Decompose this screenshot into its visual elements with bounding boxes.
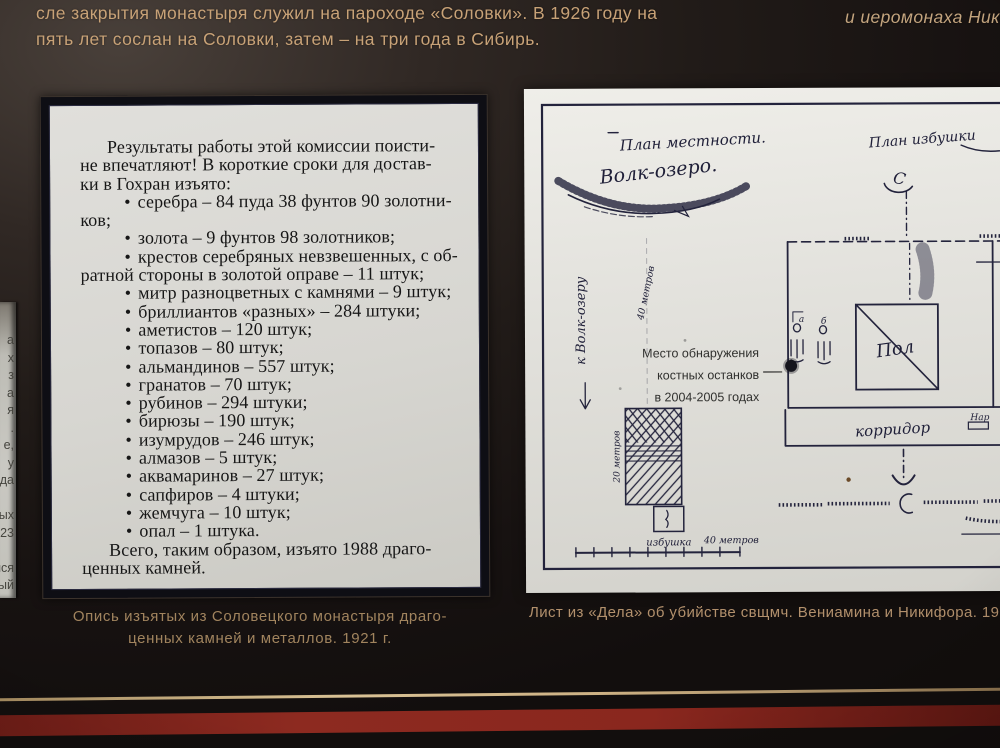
bullet-icon: • (125, 356, 132, 376)
text-fragment: 023 (0, 525, 14, 543)
bullet-icon: • (126, 484, 133, 504)
text-fragment: ых (0, 507, 14, 525)
document-line: •серебра – 84 пуда 38 фунтов 90 золотни- (80, 191, 464, 211)
skeleton-sketch-b: б (818, 316, 830, 364)
document-line: •аквамаринов – 27 штук; (82, 465, 466, 485)
document-line: •рубинов – 294 штуки; (81, 392, 465, 412)
text-fragment: да (0, 472, 14, 490)
header-line-2: пять лет сослан на Соловки, затем – на т… (36, 29, 540, 50)
remains-spot (785, 360, 797, 372)
nar-label: Нар (968, 413, 989, 429)
document-line: •аметистов – 120 штук; (81, 319, 465, 339)
document-line: •алмазов – 5 штук; (82, 447, 466, 467)
bullet-icon: • (125, 429, 132, 449)
text-fragment: а (7, 332, 14, 350)
inventory-panel: •Результаты работы этой комиссии поисти-… (40, 94, 491, 599)
svg-text:костных останков: костных останков (657, 368, 759, 382)
bullet-icon: • (125, 375, 132, 395)
direction-note: к Волк-озеру (574, 276, 589, 365)
bottom-note-squiggle (779, 493, 1000, 534)
paper-speck (846, 477, 850, 481)
site-plan-drawing: План местности. Волк-озеро. План избушки… (524, 87, 1000, 593)
bullet-icon: • (126, 448, 133, 468)
document-line: •жемчуга – 10 штук; (82, 502, 466, 522)
document-line: •изумрудов – 246 штук; (81, 429, 465, 449)
paper-speck (619, 387, 622, 390)
svg-text:в 2004-2005 годах: в 2004-2005 годах (654, 390, 760, 404)
document-line: •топазов – 80 штук; (81, 337, 465, 357)
bullet-icon: • (125, 393, 132, 413)
text-fragment: . (11, 420, 14, 438)
text-fragment: з (8, 367, 14, 385)
bullet-icon: • (125, 411, 132, 431)
hatched-area (625, 408, 681, 504)
bullet-icon: • (126, 466, 133, 486)
direction-arrow (580, 383, 590, 409)
shoreline-hatching (558, 180, 746, 217)
north-mark: С (884, 168, 912, 193)
bullet-icon: • (125, 301, 132, 321)
plan-title: План местности. (618, 128, 766, 154)
document-line: •ков; (80, 209, 464, 229)
exhibit-photo: сле закрытия монастыря служил на пароход… (0, 0, 1000, 748)
bullet-icon: • (126, 521, 133, 541)
bullet-icon: • (124, 192, 131, 212)
svg-text:С: С (891, 168, 907, 189)
remains-annotation: Место обнаружения костных останков в 200… (642, 346, 782, 405)
corridor-label: корридор (855, 418, 931, 440)
svg-text:а: а (799, 315, 804, 325)
header-line-1: сле закрытия монастыря служил на пароход… (36, 3, 657, 24)
hut-plan-title: План избушки (867, 128, 976, 152)
header-right-fragment: и иеромонаха Никифо (845, 7, 1000, 28)
document-line: •ценных камней. (82, 557, 466, 577)
text-fragment: а (7, 385, 14, 403)
stove-hatching (923, 249, 928, 295)
document-line: •бриллиантов «разных» – 284 штуки; (81, 301, 465, 321)
scale-label: 40 метров (703, 535, 759, 546)
text-fragment: х (8, 350, 14, 368)
caption-right: Лист из «Дела» об убийстве свщмч. Вениам… (529, 604, 1000, 621)
adjacent-panel-sliver: ахзая.е,удаых023лсяый (0, 302, 16, 598)
text-fragment: е, (4, 437, 14, 455)
document-line: •Всего, таким образом, изъято 1988 драго… (82, 538, 466, 558)
map-panel: План местности. Волк-озеро. План избушки… (524, 87, 1000, 593)
document-line: •бирюзы – 190 штук; (81, 410, 465, 430)
caption-left-line-1: Опись изъятых из Соловецкого монастыря д… (40, 606, 480, 628)
svg-text:Место обнаружения: Место обнаружения (642, 346, 759, 361)
handwriting-squiggle (961, 145, 1000, 151)
bullet-icon: • (125, 338, 132, 358)
lake-label: Волк-озеро. (597, 154, 718, 189)
document-line: •сапфиров – 4 штуки; (82, 484, 466, 504)
red-stripe (0, 705, 1000, 737)
caption-left-line-2: ценных камней и металлов. 1921 г. (40, 628, 480, 650)
bullet-icon: • (125, 320, 132, 340)
text-fragment: лся (0, 560, 14, 578)
bullet-icon: • (125, 283, 132, 303)
distance-path (647, 239, 648, 405)
text-fragment: я (7, 402, 14, 420)
inventory-paper: •Результаты работы этой комиссии поисти-… (49, 103, 482, 590)
bullet-icon: • (126, 503, 133, 523)
text-fragment: ый (0, 577, 14, 595)
bullet-icon: • (124, 246, 131, 266)
document-line: •не впечатляют! В короткие сроки для дос… (80, 154, 464, 174)
skeleton-sketch-a: а (791, 312, 805, 362)
text-fragment: у (8, 455, 14, 473)
hut-label: избушка (646, 537, 691, 548)
document-line: •гранатов – 70 штук; (81, 374, 465, 394)
svg-text:б: б (821, 316, 827, 327)
side-length-label: 20 метров (612, 431, 622, 484)
scale-bar (576, 547, 740, 557)
bullet-icon: • (124, 228, 131, 248)
paper-speck (684, 339, 687, 342)
hut-square (654, 506, 684, 531)
gold-divider-line (0, 688, 1000, 702)
caption-left: Опись изъятых из Соловецкого монастыря д… (40, 606, 480, 650)
document-line: •альмандинов – 557 штук; (81, 356, 465, 376)
